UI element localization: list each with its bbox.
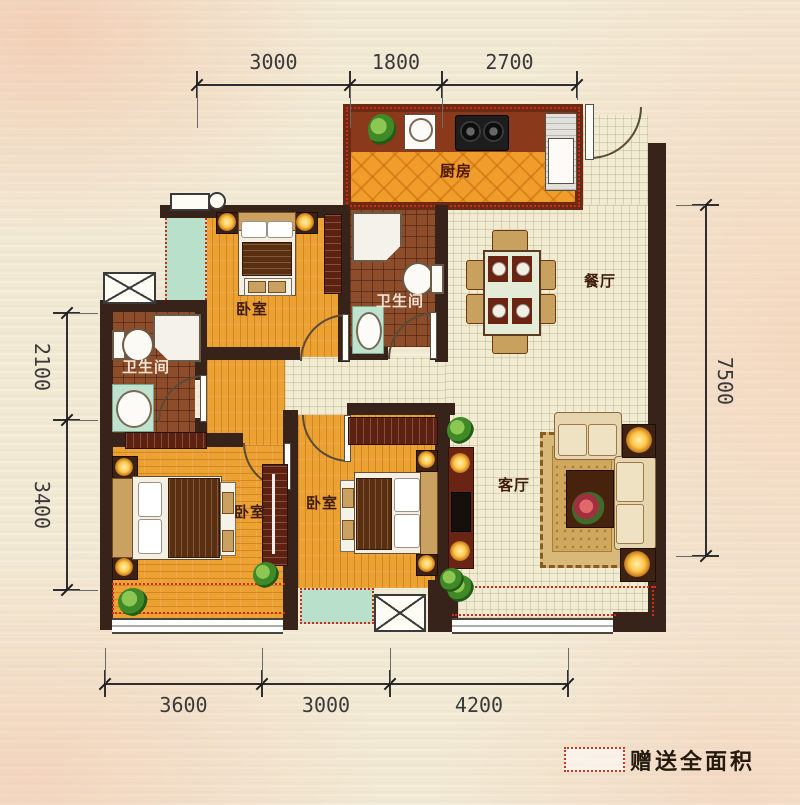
bed-pillow bbox=[138, 482, 162, 517]
dim-value-right: 7500 bbox=[715, 356, 735, 404]
bed-blanket bbox=[356, 478, 392, 550]
bench-cushion bbox=[342, 520, 354, 540]
dim-value-bottom-2: 3000 bbox=[262, 695, 390, 715]
wardrobe bbox=[125, 432, 207, 449]
bedroom-left-window bbox=[112, 618, 283, 634]
bench-cushion bbox=[222, 530, 234, 552]
bedroom-top-door-leaf bbox=[342, 314, 349, 361]
sink-basin bbox=[116, 390, 152, 428]
dim-value-top-3: 2700 bbox=[442, 52, 577, 72]
plate bbox=[516, 262, 530, 276]
bedroom-plant bbox=[253, 562, 279, 588]
dim-value-left-2: 3400 bbox=[32, 481, 52, 529]
dim-extension bbox=[577, 86, 578, 100]
bedroom-top-bay-window bbox=[165, 215, 207, 304]
dim-value-left-1: 2100 bbox=[32, 342, 52, 390]
dim-line bbox=[66, 313, 68, 590]
dim-value-bottom-1: 3600 bbox=[105, 695, 262, 715]
flower-bouquet bbox=[572, 492, 606, 526]
bedroom-mid-label: 卧室 bbox=[294, 496, 350, 512]
dining-label: 餐厅 bbox=[572, 274, 628, 290]
dim-value-left-1-wrap: 2100 bbox=[28, 313, 56, 420]
lamp-glow bbox=[296, 213, 314, 231]
dim-extension bbox=[350, 86, 351, 128]
ac-platform-bottom bbox=[374, 594, 426, 632]
lamp-glow bbox=[115, 458, 133, 476]
legend-gift-swatch bbox=[564, 747, 625, 772]
lamp-glow bbox=[115, 558, 133, 576]
bedroom-top-label: 卧室 bbox=[224, 302, 280, 318]
dim-value-top-1: 3000 bbox=[197, 52, 350, 72]
ac-platform-left bbox=[103, 272, 156, 304]
living-label: 客厅 bbox=[486, 478, 542, 494]
dim-extension bbox=[676, 556, 705, 557]
plate bbox=[492, 262, 506, 276]
dim-extension bbox=[262, 648, 263, 683]
sofa-cushion bbox=[588, 424, 617, 456]
dim-extension bbox=[568, 648, 569, 683]
kitchen-sink-basin bbox=[409, 118, 433, 142]
wardrobe bbox=[324, 214, 342, 294]
sink-basin bbox=[356, 312, 382, 350]
bath-mid-door-leaf bbox=[430, 312, 437, 359]
bed-pillow bbox=[394, 514, 420, 548]
kitchen-label: 厨房 bbox=[428, 164, 484, 180]
kitchen-side-sink bbox=[548, 138, 574, 184]
lamp-glow bbox=[218, 213, 236, 231]
living-gift-dash-top bbox=[452, 586, 656, 588]
bath-left-door-leaf bbox=[200, 375, 207, 422]
lamp-glow bbox=[450, 541, 470, 561]
gift-area-plant bbox=[118, 588, 148, 616]
dim-line bbox=[197, 84, 577, 86]
bedroom-plant bbox=[440, 568, 464, 592]
bed-headboard bbox=[420, 470, 438, 556]
dim-extension bbox=[68, 313, 98, 314]
floor-plan-canvas: 厨房 餐厅 客厅 卧室 卧室 卧室 卫生间 卫生间 3000 1800 2700 bbox=[0, 0, 800, 805]
living-gift-dash-bottom bbox=[452, 614, 616, 616]
living-gift-dash-side bbox=[652, 586, 654, 616]
dim-value-left-2-wrap: 3400 bbox=[28, 420, 56, 590]
dim-value-right-wrap: 7500 bbox=[710, 205, 740, 556]
lamp-glow bbox=[418, 451, 435, 468]
dim-extension bbox=[68, 420, 98, 421]
stove-burner-left bbox=[460, 121, 481, 142]
bed-pillow bbox=[267, 221, 293, 238]
toilet-tank bbox=[430, 264, 444, 294]
sofa-cushion bbox=[616, 504, 644, 544]
washer-drum bbox=[208, 192, 226, 210]
lamp-glow bbox=[418, 555, 435, 572]
bed-pillow bbox=[394, 478, 420, 512]
sofa-cushion bbox=[558, 424, 587, 456]
legend-gift-label: 赠送全面积 bbox=[630, 744, 755, 776]
lamp-glow bbox=[450, 453, 470, 473]
plate bbox=[492, 304, 506, 318]
stove-burner-right bbox=[483, 121, 504, 142]
bed-blanket bbox=[242, 242, 292, 276]
bedroom-mid-bay-window bbox=[300, 588, 374, 624]
dim-extension bbox=[197, 86, 198, 128]
dim-line bbox=[705, 205, 707, 556]
lamp-glow bbox=[626, 427, 652, 453]
bedroom-left-gift-dash-side bbox=[112, 583, 114, 614]
entry-door-leaf bbox=[585, 104, 594, 160]
dim-value-top-2: 1800 bbox=[350, 52, 442, 72]
toilet bbox=[122, 328, 154, 362]
bath-left-label: 卫生间 bbox=[116, 360, 176, 376]
bed-pillow bbox=[241, 221, 267, 238]
kitchen-plant bbox=[368, 114, 396, 146]
sofa-cushion bbox=[616, 462, 644, 502]
bath-mid-label: 卫生间 bbox=[370, 294, 430, 310]
lamp-glow bbox=[624, 551, 650, 577]
wall-bottom-right bbox=[613, 612, 666, 632]
wardrobe bbox=[348, 417, 438, 445]
washer-box bbox=[170, 193, 210, 211]
tv-screen bbox=[451, 492, 471, 532]
dim-extension bbox=[442, 86, 443, 128]
bench-cushion bbox=[268, 281, 286, 293]
dim-extension bbox=[68, 590, 98, 591]
dim-extension bbox=[390, 648, 391, 683]
bed-blanket bbox=[168, 478, 220, 558]
bench-cushion bbox=[248, 281, 266, 293]
living-plant bbox=[447, 417, 474, 444]
bed-pillow bbox=[138, 519, 162, 554]
dim-value-bottom-3: 4200 bbox=[390, 695, 568, 715]
living-window bbox=[452, 618, 613, 634]
dim-line bbox=[105, 683, 568, 685]
plate bbox=[516, 304, 530, 318]
dim-extension bbox=[676, 205, 705, 206]
bedroom-left-label: 卧室 bbox=[222, 505, 278, 521]
dim-extension bbox=[105, 648, 106, 683]
wall-bedroom-top-south bbox=[205, 347, 300, 360]
